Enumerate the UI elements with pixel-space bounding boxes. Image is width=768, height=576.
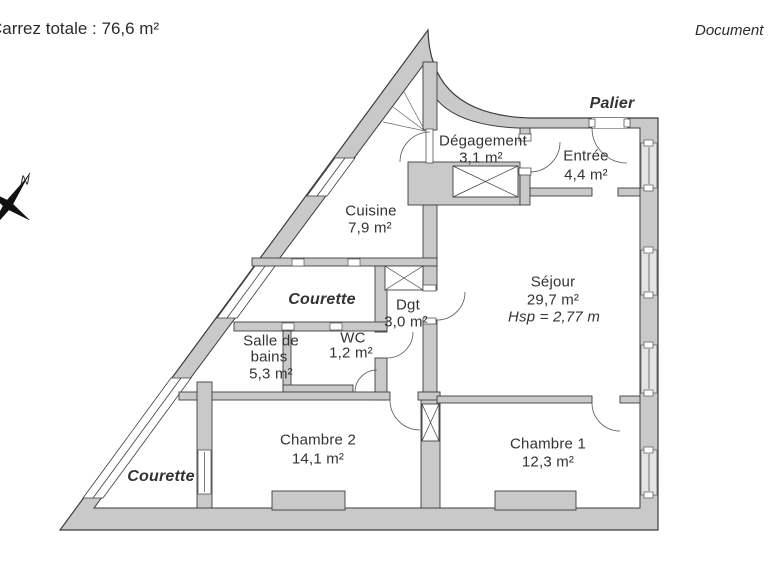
label-cuisine-area: 7,9 m² — [348, 221, 392, 236]
label-courette-haut: Courette — [288, 292, 355, 308]
label-sejour-name: Séjour — [531, 275, 576, 290]
label-chambre2-area: 14,1 m² — [292, 452, 344, 467]
label-chambre1-area: 12,3 m² — [522, 455, 574, 470]
floorplan-drawing — [0, 0, 768, 576]
label-dgt-area: 3,0 m² — [384, 315, 428, 330]
floorplan-page: Carrez totale : 76,6 m² Document n N Pal… — [0, 0, 768, 576]
label-chambre1-name: Chambre 1 — [510, 437, 586, 452]
label-wc-area: 1,2 m² — [329, 346, 373, 361]
label-sejour-area: 29,7 m² — [527, 293, 579, 308]
label-dgt-name: Dgt — [396, 298, 420, 313]
label-wc-name: WC — [340, 331, 365, 346]
compass-north-label: N — [20, 174, 30, 187]
label-entree-name: Entrée — [563, 149, 608, 164]
label-sdb-name-2: bains — [251, 350, 288, 365]
label-degagement-area: 3,1 m² — [459, 151, 503, 166]
document-note: Document n — [695, 22, 768, 39]
label-degagement-name: Dégagement — [439, 134, 527, 149]
label-palier: Palier — [590, 96, 635, 112]
label-entree-area: 4,4 m² — [564, 168, 608, 183]
surface-note: Carrez totale : 76,6 m² — [0, 19, 159, 39]
label-chambre2-name: Chambre 2 — [280, 433, 356, 448]
label-sdb-name-1: Salle de — [243, 334, 299, 349]
label-sdb-area: 5,3 m² — [249, 367, 293, 382]
courette-window-icon — [198, 450, 211, 494]
label-sejour-ceiling: Hsp = 2,77 m — [508, 310, 600, 325]
label-cuisine-name: Cuisine — [345, 204, 396, 219]
label-courette-bas: Courette — [127, 469, 194, 485]
